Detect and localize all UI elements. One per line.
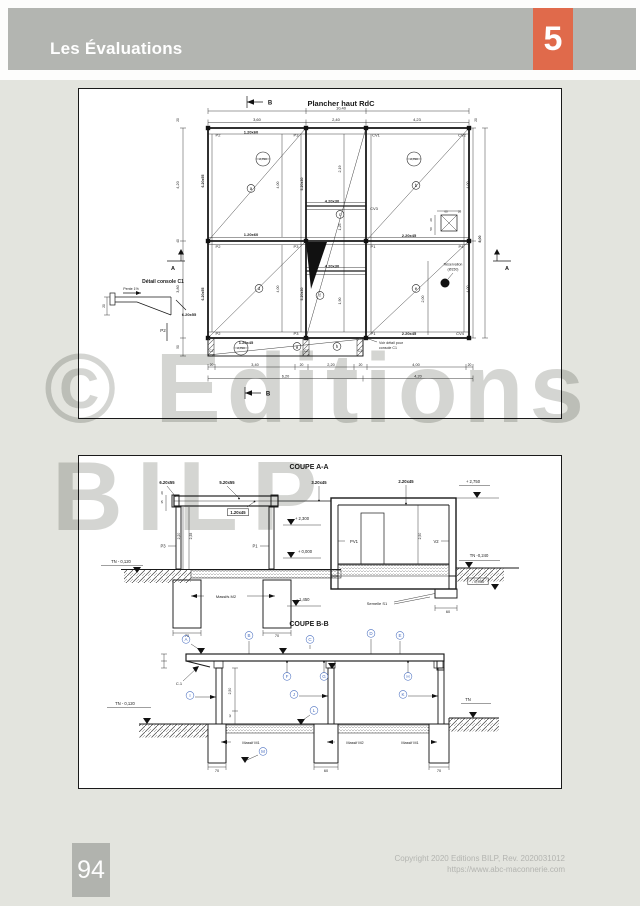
drawing-label: Massifs M2 bbox=[216, 594, 237, 599]
drawing-label: Massif M1 bbox=[242, 741, 259, 745]
drawing-label: 2,790 bbox=[237, 346, 245, 350]
drawing-label: F bbox=[286, 674, 289, 679]
drawing-label: 3,40 bbox=[251, 363, 258, 367]
drawing-label: G bbox=[322, 674, 326, 679]
drawing-label: B bbox=[268, 101, 273, 107]
drawing-label: 2.20x45 bbox=[402, 233, 417, 238]
copyright-line1: Copyright 2020 Editions BILP, Rev. 20200… bbox=[395, 853, 566, 864]
drawing-label: + 2,750 bbox=[466, 479, 481, 484]
drawing-label: P2 bbox=[216, 331, 222, 336]
page-number: 94 bbox=[72, 843, 110, 897]
drawing-label: 50 bbox=[429, 227, 433, 231]
drawing-label: 1,25 bbox=[338, 224, 342, 231]
drawing-label: 60 bbox=[446, 610, 450, 614]
drawing-label: 2,20 bbox=[327, 363, 334, 367]
drawing-label: CV3 bbox=[370, 206, 379, 211]
drawing-label: 20 bbox=[468, 363, 472, 367]
drawing-label: 2,19 bbox=[338, 166, 342, 173]
drawing-label: 20 bbox=[210, 363, 214, 367]
drawing-label: A bbox=[505, 266, 509, 272]
drawing-label: 20 bbox=[102, 304, 106, 308]
coupe-a-labels: COUPE A-A6.20x555.20x553.20x452.20x45+ 2… bbox=[111, 464, 489, 638]
drawing-label: 70 bbox=[275, 634, 279, 638]
drawing-label: P2 bbox=[216, 133, 222, 138]
drawing-label: A bbox=[171, 266, 175, 272]
section-marker-b-top bbox=[247, 96, 263, 108]
drawing-label: 2,50 bbox=[418, 533, 422, 540]
drawing-label: J bbox=[293, 692, 295, 697]
drawing-label: Massif M2 bbox=[346, 741, 363, 745]
drawing-label: C3 bbox=[358, 349, 362, 353]
drawing-label: B bbox=[266, 392, 271, 398]
drawing-label: 4,00 bbox=[276, 286, 280, 293]
drawing-label: 70 bbox=[215, 769, 219, 773]
drawing-label: 3,80 bbox=[176, 285, 180, 292]
plan-dimension-lines bbox=[180, 108, 488, 382]
drawing-label: TN -0,240 bbox=[470, 553, 489, 558]
drawing-label: 70 bbox=[437, 769, 441, 773]
panel-floor-plan: Plancher haut RdCB10,403,602,404,2320204… bbox=[78, 88, 562, 419]
section-marker-b-bottom bbox=[245, 387, 261, 399]
page-title: Les Évaluations bbox=[50, 39, 182, 59]
drawing-label: - 1,450 bbox=[296, 597, 310, 602]
plan-reservation-dot bbox=[441, 279, 450, 288]
drawing-label: 20 bbox=[474, 118, 478, 122]
drawing-label: 1.20x60 bbox=[244, 232, 259, 237]
drawing-label: TN - 0,120 bbox=[111, 559, 131, 564]
drawing-label: Détail console C1 bbox=[142, 279, 184, 285]
drawing-label: 1.20x45 bbox=[230, 510, 246, 515]
drawing-label: COUPE A-A bbox=[289, 464, 328, 471]
drawing-label: 3,60 bbox=[253, 117, 262, 122]
drawing-label: P1 bbox=[371, 331, 377, 336]
drawing-label: E bbox=[398, 633, 401, 638]
section-marker-a-right bbox=[493, 249, 511, 261]
drawing-label: 6.20x55 bbox=[201, 288, 205, 301]
panel-sections: COUPE A-A6.20x555.20x553.20x452.20x45+ 2… bbox=[78, 455, 562, 789]
sections-drawing: COUPE A-A6.20x555.20x553.20x452.20x45+ 2… bbox=[79, 456, 561, 788]
drawing-label: 35 bbox=[160, 500, 164, 504]
drawing-label: 2.20x45 bbox=[398, 479, 414, 484]
plan-reservation-leader bbox=[448, 273, 453, 279]
drawing-label: C2 bbox=[304, 349, 308, 353]
drawing-label: I bbox=[189, 693, 190, 698]
drawing-label: 2,790 bbox=[259, 157, 267, 161]
drawing-label: 2.20x45 bbox=[402, 331, 417, 336]
drawing-label: COUPE B-B bbox=[289, 621, 328, 628]
drawing-label: 8,00 bbox=[478, 236, 482, 243]
drawing-label: 3.20x45 bbox=[311, 480, 327, 485]
drawing-label: 10,40 bbox=[336, 106, 347, 111]
drawing-label: 4,00 bbox=[412, 363, 419, 367]
drawing-label: CV1 bbox=[372, 133, 381, 138]
drawing-label: 2,50 bbox=[228, 688, 232, 695]
copyright: Copyright 2020 Editions BILP, Rev. 20200… bbox=[395, 853, 566, 875]
drawing-label: + 0,000 bbox=[298, 549, 313, 554]
drawing-label: CV2 bbox=[458, 133, 467, 138]
drawing-label: 6,20 bbox=[282, 375, 289, 379]
drawing-label: 4.20x30 bbox=[325, 199, 340, 204]
coupe-b-geometry bbox=[107, 639, 499, 770]
drawing-label: C1 bbox=[209, 349, 213, 353]
drawing-label: P3 bbox=[294, 331, 300, 336]
drawing-label: M bbox=[261, 749, 265, 754]
drawing-label: 1,90 bbox=[338, 298, 342, 305]
drawing-label: 20 bbox=[429, 218, 433, 222]
drawing-label: 4,23 bbox=[413, 117, 422, 122]
drawing-label: 2,40 bbox=[332, 117, 341, 122]
drawing-label: TN - 0,120 bbox=[115, 701, 135, 706]
drawing-label: 2,00 bbox=[421, 296, 425, 303]
drawing-label: P2 bbox=[216, 244, 222, 249]
coupe-b-labels: COUPE B-BABCDEFGHIJKLMC.1TN - 0,120TN2,5… bbox=[115, 621, 471, 773]
drawing-label: 20 bbox=[458, 210, 462, 214]
drawing-label: H bbox=[406, 674, 409, 679]
coupe-a-geometry bbox=[101, 485, 519, 636]
drawing-label: Pente 1% bbox=[123, 287, 139, 291]
drawing-label: 4,00 bbox=[466, 286, 470, 293]
drawing-label: 60 bbox=[324, 769, 328, 773]
drawing-label: 12 bbox=[228, 714, 232, 718]
drawing-label: 2,20 bbox=[177, 533, 181, 540]
drawing-label: P2 bbox=[160, 328, 166, 333]
drawing-label: Semelle S1 bbox=[367, 601, 388, 606]
console-detail-sketch bbox=[104, 291, 186, 341]
plan-opening bbox=[441, 215, 457, 231]
drawing-label: 2,790 bbox=[410, 157, 418, 161]
drawing-label: P1 bbox=[252, 544, 258, 549]
drawing-label: V2 bbox=[433, 539, 439, 544]
drawing-label: 20 bbox=[160, 491, 164, 495]
drawing-label: B bbox=[247, 633, 250, 638]
floor-plan-drawing: Plancher haut RdCB10,403,602,404,2320204… bbox=[79, 89, 561, 418]
drawing-label: 5.20x55 bbox=[219, 480, 235, 485]
drawing-label: TN bbox=[465, 697, 471, 702]
drawing-label: P3 bbox=[294, 133, 300, 138]
drawing-label: 40 bbox=[176, 239, 180, 243]
drawing-label: 4,00 bbox=[276, 182, 280, 189]
section-marker-a-left bbox=[167, 249, 185, 261]
drawing-label: CV4 bbox=[456, 331, 465, 336]
drawing-label: 5.20x30 bbox=[300, 288, 304, 301]
drawing-label: (Ø150) bbox=[448, 268, 459, 272]
drawing-label: Voir détail pour bbox=[379, 341, 404, 345]
drawing-label: 20 bbox=[359, 363, 363, 367]
drawing-label: K bbox=[401, 692, 404, 697]
drawing-label: 4.20x30 bbox=[325, 264, 340, 269]
drawing-label: console C1 bbox=[379, 346, 397, 350]
drawing-label: Massif M1 bbox=[401, 741, 418, 745]
drawing-label: C.1 bbox=[176, 681, 183, 686]
drawing-label: 20 bbox=[176, 118, 180, 122]
drawing-label: P3 bbox=[160, 544, 166, 549]
drawing-label: + 2,300 bbox=[295, 516, 310, 521]
drawing-label: Réservation bbox=[444, 263, 463, 267]
drawing-label: 6.20x55 bbox=[201, 175, 205, 188]
drawing-label: 4,00 bbox=[466, 182, 470, 189]
chapter-badge: 5 bbox=[533, 8, 573, 70]
drawing-label: A bbox=[184, 637, 187, 642]
drawing-label: P1 bbox=[371, 244, 377, 249]
drawing-label: PV1 bbox=[350, 539, 359, 544]
drawing-label: 50 bbox=[176, 345, 180, 349]
drawing-label: 1.20x60 bbox=[244, 130, 259, 135]
drawing-label: 4,20 bbox=[414, 375, 421, 379]
drawing-label: - 0,950 bbox=[472, 579, 485, 584]
drawing-label: 5.20x30 bbox=[300, 178, 304, 191]
drawing-label: 6.20x55 bbox=[182, 312, 197, 317]
drawing-label: 60 bbox=[444, 210, 448, 214]
drawing-label: P4 bbox=[459, 244, 465, 249]
copyright-line2: https://www.abc-maconnerie.com bbox=[395, 864, 566, 875]
drawing-label: 20 bbox=[300, 363, 304, 367]
drawing-label: 6.20x55 bbox=[159, 480, 175, 485]
drawing-label: 2,35 bbox=[189, 533, 193, 540]
page: Les Évaluations 5 bbox=[0, 0, 640, 906]
drawing-label: P3 bbox=[294, 244, 300, 249]
drawing-label: 4,20 bbox=[176, 181, 180, 188]
